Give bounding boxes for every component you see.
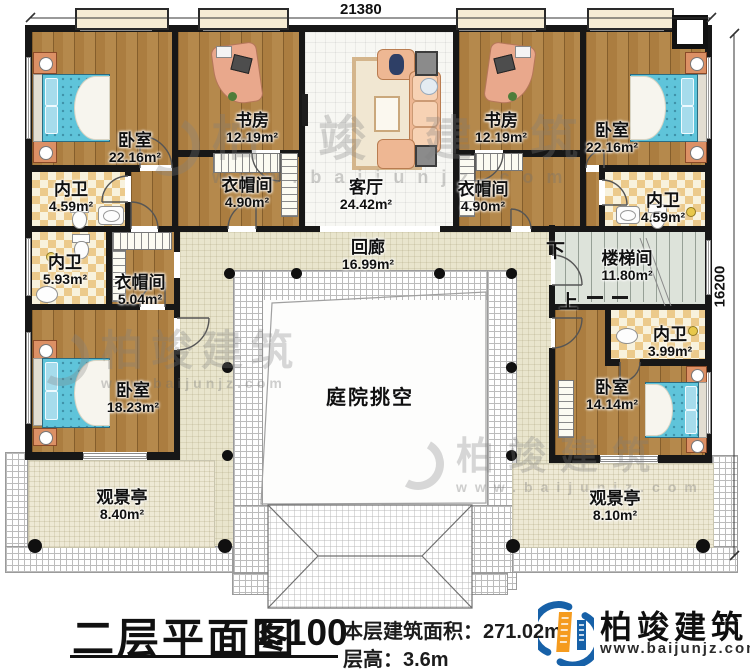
pillow: [45, 106, 58, 134]
nightstand: [33, 141, 57, 163]
window: [706, 240, 711, 295]
chimney: [672, 15, 708, 49]
nightstand: [686, 366, 707, 383]
sink: [616, 328, 638, 344]
wall: [549, 455, 600, 463]
nightstand: [33, 340, 57, 360]
wall: [605, 359, 620, 366]
room-label-stairwell: 楼梯间11.80m²: [601, 249, 652, 284]
laptop: [515, 46, 531, 58]
column: [222, 362, 233, 373]
tv: [302, 94, 308, 126]
column: [222, 450, 233, 461]
plant: [228, 92, 237, 101]
wall: [174, 278, 180, 318]
column: [696, 539, 710, 553]
room-label-study-l: 书房12.19m²: [226, 111, 278, 146]
nightstand: [33, 52, 57, 74]
wall: [25, 165, 140, 172]
wall: [658, 455, 712, 463]
room-label-bath-ml: 内卫5.93m²: [43, 253, 87, 288]
column: [506, 450, 517, 461]
room-label-bath-tl: 内卫4.59m²: [49, 180, 93, 215]
room-label-courtyard: 庭院挑空: [326, 387, 414, 409]
wardrobe: [558, 380, 574, 438]
rug-medallion: [374, 96, 400, 132]
room-label-closet-l: 衣帽间4.90m²: [222, 176, 273, 211]
bed-blanket: [74, 76, 110, 140]
nightstand: [685, 52, 707, 74]
wardrobe: [281, 153, 298, 217]
pillow: [681, 106, 694, 134]
side-table: [415, 51, 438, 76]
room-label-living: 客厅24.42m²: [340, 178, 392, 213]
room-label-bedroom-r: 卧室14.14m²: [586, 378, 638, 413]
sofa: [377, 139, 415, 169]
room-label-bath-mr: 内卫3.99m²: [648, 325, 692, 360]
porch-slab-right: [468, 573, 508, 595]
stair-up-label: 上: [559, 287, 578, 314]
column: [506, 539, 520, 553]
room-label-bedroom-tr: 卧室22.16m²: [586, 121, 638, 156]
stair-dash: [612, 296, 628, 299]
bay-window: [198, 8, 289, 30]
bed-blanket: [74, 360, 110, 426]
column: [506, 362, 517, 373]
column: [218, 539, 232, 553]
side-table: [415, 145, 437, 167]
pillow: [45, 391, 58, 420]
wardrobe: [112, 232, 172, 250]
stair-dash: [587, 296, 603, 299]
room-label-bath-tr: 内卫4.59m²: [641, 191, 685, 226]
title-underline: [70, 655, 338, 658]
nightstand: [686, 437, 707, 453]
wall: [604, 165, 712, 172]
room-label-bedroom-tl: 卧室22.16m²: [109, 131, 161, 166]
pillow: [685, 386, 697, 410]
laptop: [216, 46, 232, 58]
room-label-closet-r: 衣帽间4.90m²: [458, 180, 509, 215]
pillow: [45, 362, 58, 391]
sink: [616, 206, 640, 224]
brand-logo-icon: [538, 598, 594, 666]
sink: [98, 206, 124, 225]
pillow: [45, 78, 58, 106]
dimension-height: 16200: [712, 257, 729, 317]
floor-plan: 柏竣建筑 www.baijunjz.com 柏竣建筑 www.baijunjz.…: [0, 0, 750, 672]
brand-website: www.baijunjz.com: [600, 640, 750, 657]
room-label-study-r: 书房12.19m²: [475, 111, 527, 146]
column: [506, 268, 517, 279]
pillow: [685, 410, 697, 434]
pillow: [681, 78, 694, 106]
column: [434, 268, 445, 279]
window: [26, 238, 31, 296]
sofa-cushion: [412, 101, 438, 127]
wall: [549, 285, 555, 318]
window: [26, 57, 31, 139]
wall: [174, 232, 180, 252]
wall: [174, 350, 180, 460]
person: [389, 54, 404, 75]
floor-height-text: 层高：3.6m: [343, 643, 449, 672]
column: [291, 268, 302, 279]
wall: [549, 348, 555, 463]
shower-head: [686, 207, 696, 217]
bay-window: [75, 8, 169, 30]
bay-window: [456, 8, 546, 30]
nightstand: [33, 428, 57, 446]
wall: [440, 226, 511, 232]
wall: [605, 310, 611, 365]
wardrobe: [213, 153, 281, 173]
hall-tl-floor: [131, 171, 172, 226]
courtyard-band-bottom: [233, 505, 517, 573]
plan-scale: 1:100: [253, 612, 348, 654]
wall: [256, 226, 320, 232]
wardrobe: [475, 153, 523, 171]
floor-area-text: 本层建筑面积：271.02m²: [343, 615, 569, 644]
person: [420, 78, 438, 95]
room-label-bedroom-l: 卧室18.23m²: [107, 381, 159, 416]
column: [28, 539, 42, 553]
room-label-pavilion-l: 观景亭8.40m²: [97, 488, 148, 523]
window: [83, 453, 147, 459]
room-label-closet-ml: 衣帽间5.04m²: [115, 273, 166, 308]
wall: [640, 359, 712, 366]
plant: [508, 92, 517, 101]
porch-slab-left: [232, 573, 312, 595]
nightstand: [685, 141, 707, 163]
column: [224, 268, 235, 279]
room-label-pavilion-r: 观景亭8.10m²: [590, 489, 641, 524]
wall: [25, 452, 83, 460]
wall: [580, 165, 586, 172]
bay-window: [587, 8, 674, 30]
wall: [172, 25, 178, 232]
courtyard-walkway-band-top: [233, 270, 517, 302]
window: [600, 456, 658, 462]
window: [26, 332, 31, 424]
room-label-corridor: 回廊16.99m²: [342, 238, 394, 273]
sink: [36, 286, 58, 303]
dimension-width: 21380: [340, 1, 382, 18]
wall: [299, 25, 305, 232]
stair-down-label: 下: [546, 236, 565, 263]
hall-tr-floor: [586, 172, 599, 226]
